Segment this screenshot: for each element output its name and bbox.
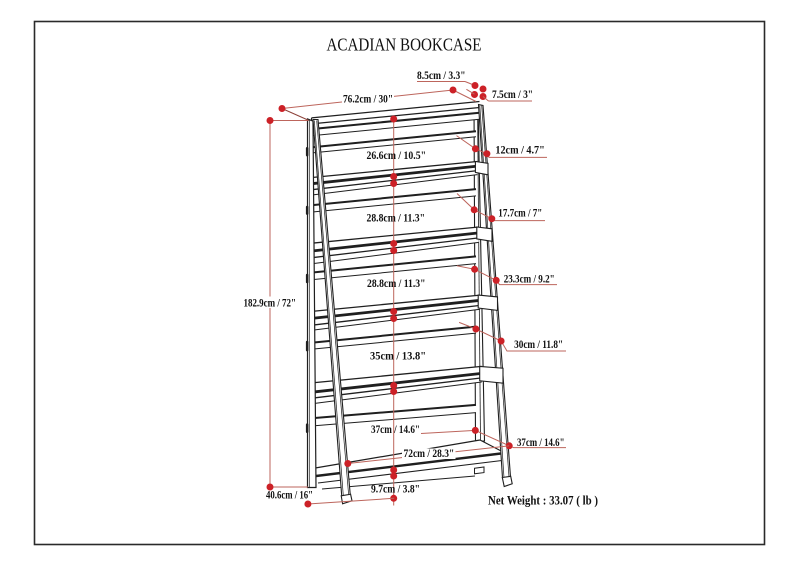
svg-text:37cm / 14.6": 37cm / 14.6" — [517, 435, 565, 449]
svg-text:28.8cm / 11.3": 28.8cm / 11.3" — [367, 211, 426, 225]
svg-text:26.6cm / 10.5": 26.6cm / 10.5" — [367, 148, 427, 162]
svg-text:72cm / 28.3": 72cm / 28.3" — [404, 446, 455, 460]
svg-text:7.5cm / 3": 7.5cm / 3" — [492, 87, 533, 101]
svg-text:Net Weight : 33.07 ( lb ): Net Weight : 33.07 ( lb ) — [488, 494, 598, 508]
svg-text:30cm / 11.8": 30cm / 11.8" — [514, 337, 563, 351]
svg-text:40.6cm / 16": 40.6cm / 16" — [266, 488, 313, 502]
svg-text:8.5cm / 3.3": 8.5cm / 3.3" — [417, 68, 466, 82]
svg-text:28.8cm / 11.3": 28.8cm / 11.3" — [367, 276, 426, 290]
svg-text:12cm / 4.7": 12cm / 4.7" — [495, 143, 544, 157]
svg-text:37cm / 14.6": 37cm / 14.6" — [371, 422, 420, 436]
svg-text:76.2cm / 30": 76.2cm / 30" — [343, 92, 393, 106]
svg-text:9.7cm / 3.8": 9.7cm / 3.8" — [371, 482, 420, 496]
svg-text:23.3cm / 9.2": 23.3cm / 9.2" — [504, 272, 555, 286]
svg-text:17.7cm / 7": 17.7cm / 7" — [498, 205, 542, 219]
svg-text:182.9cm / 72": 182.9cm / 72" — [244, 296, 297, 310]
svg-text:35cm / 13.8": 35cm / 13.8" — [370, 349, 426, 363]
svg-text:ACADIAN BOOKCASE: ACADIAN BOOKCASE — [327, 35, 482, 55]
